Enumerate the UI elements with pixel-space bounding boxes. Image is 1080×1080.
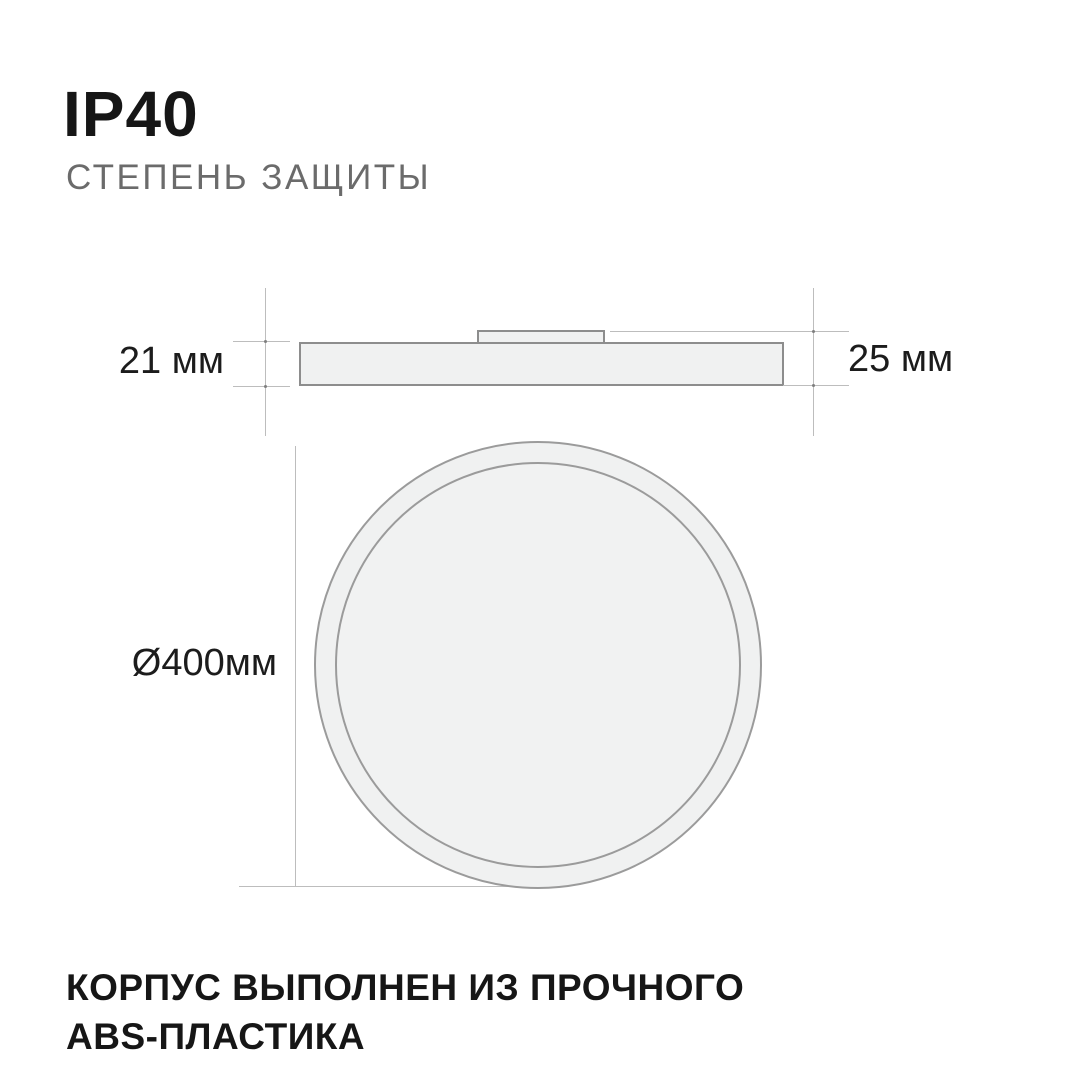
- dimension-tick-left-bottom: [233, 386, 290, 387]
- page-subtitle: СТЕПЕНЬ ЗАЩИТЫ: [66, 158, 431, 198]
- dimension-line-right-vertical: [813, 288, 814, 436]
- fixture-body-profile: [299, 342, 784, 386]
- dimension-dot: [812, 384, 815, 387]
- body-height-label: 21 мм: [90, 342, 224, 380]
- material-caption-line2: ABS-ПЛАСТИКА: [66, 1012, 744, 1061]
- diameter-label: Ø400мм: [80, 644, 277, 682]
- product-spec-infographic: IP40 СТЕПЕНЬ ЗАЩИТЫ 21 мм 25 мм Ø400мм К…: [0, 0, 1080, 1080]
- dimension-dot: [812, 330, 815, 333]
- dimension-dot: [264, 385, 267, 388]
- panel-inner-circle: [335, 462, 741, 868]
- diameter-dimension-line-bottom: [239, 886, 538, 887]
- page-title: IP40: [63, 82, 199, 146]
- material-caption: КОРПУС ВЫПОЛНЕН ИЗ ПРОЧНОГО ABS-ПЛАСТИКА: [66, 963, 744, 1061]
- total-height-label: 25 мм: [848, 340, 953, 378]
- diameter-dimension-line-vertical: [295, 446, 296, 887]
- dimension-tick-right-bottom: [783, 385, 849, 386]
- dimension-tick-left-top: [233, 341, 290, 342]
- dimension-dot: [264, 340, 267, 343]
- material-caption-line1: КОРПУС ВЫПОЛНЕН ИЗ ПРОЧНОГО: [66, 963, 744, 1012]
- dimension-line-left-vertical: [265, 288, 266, 436]
